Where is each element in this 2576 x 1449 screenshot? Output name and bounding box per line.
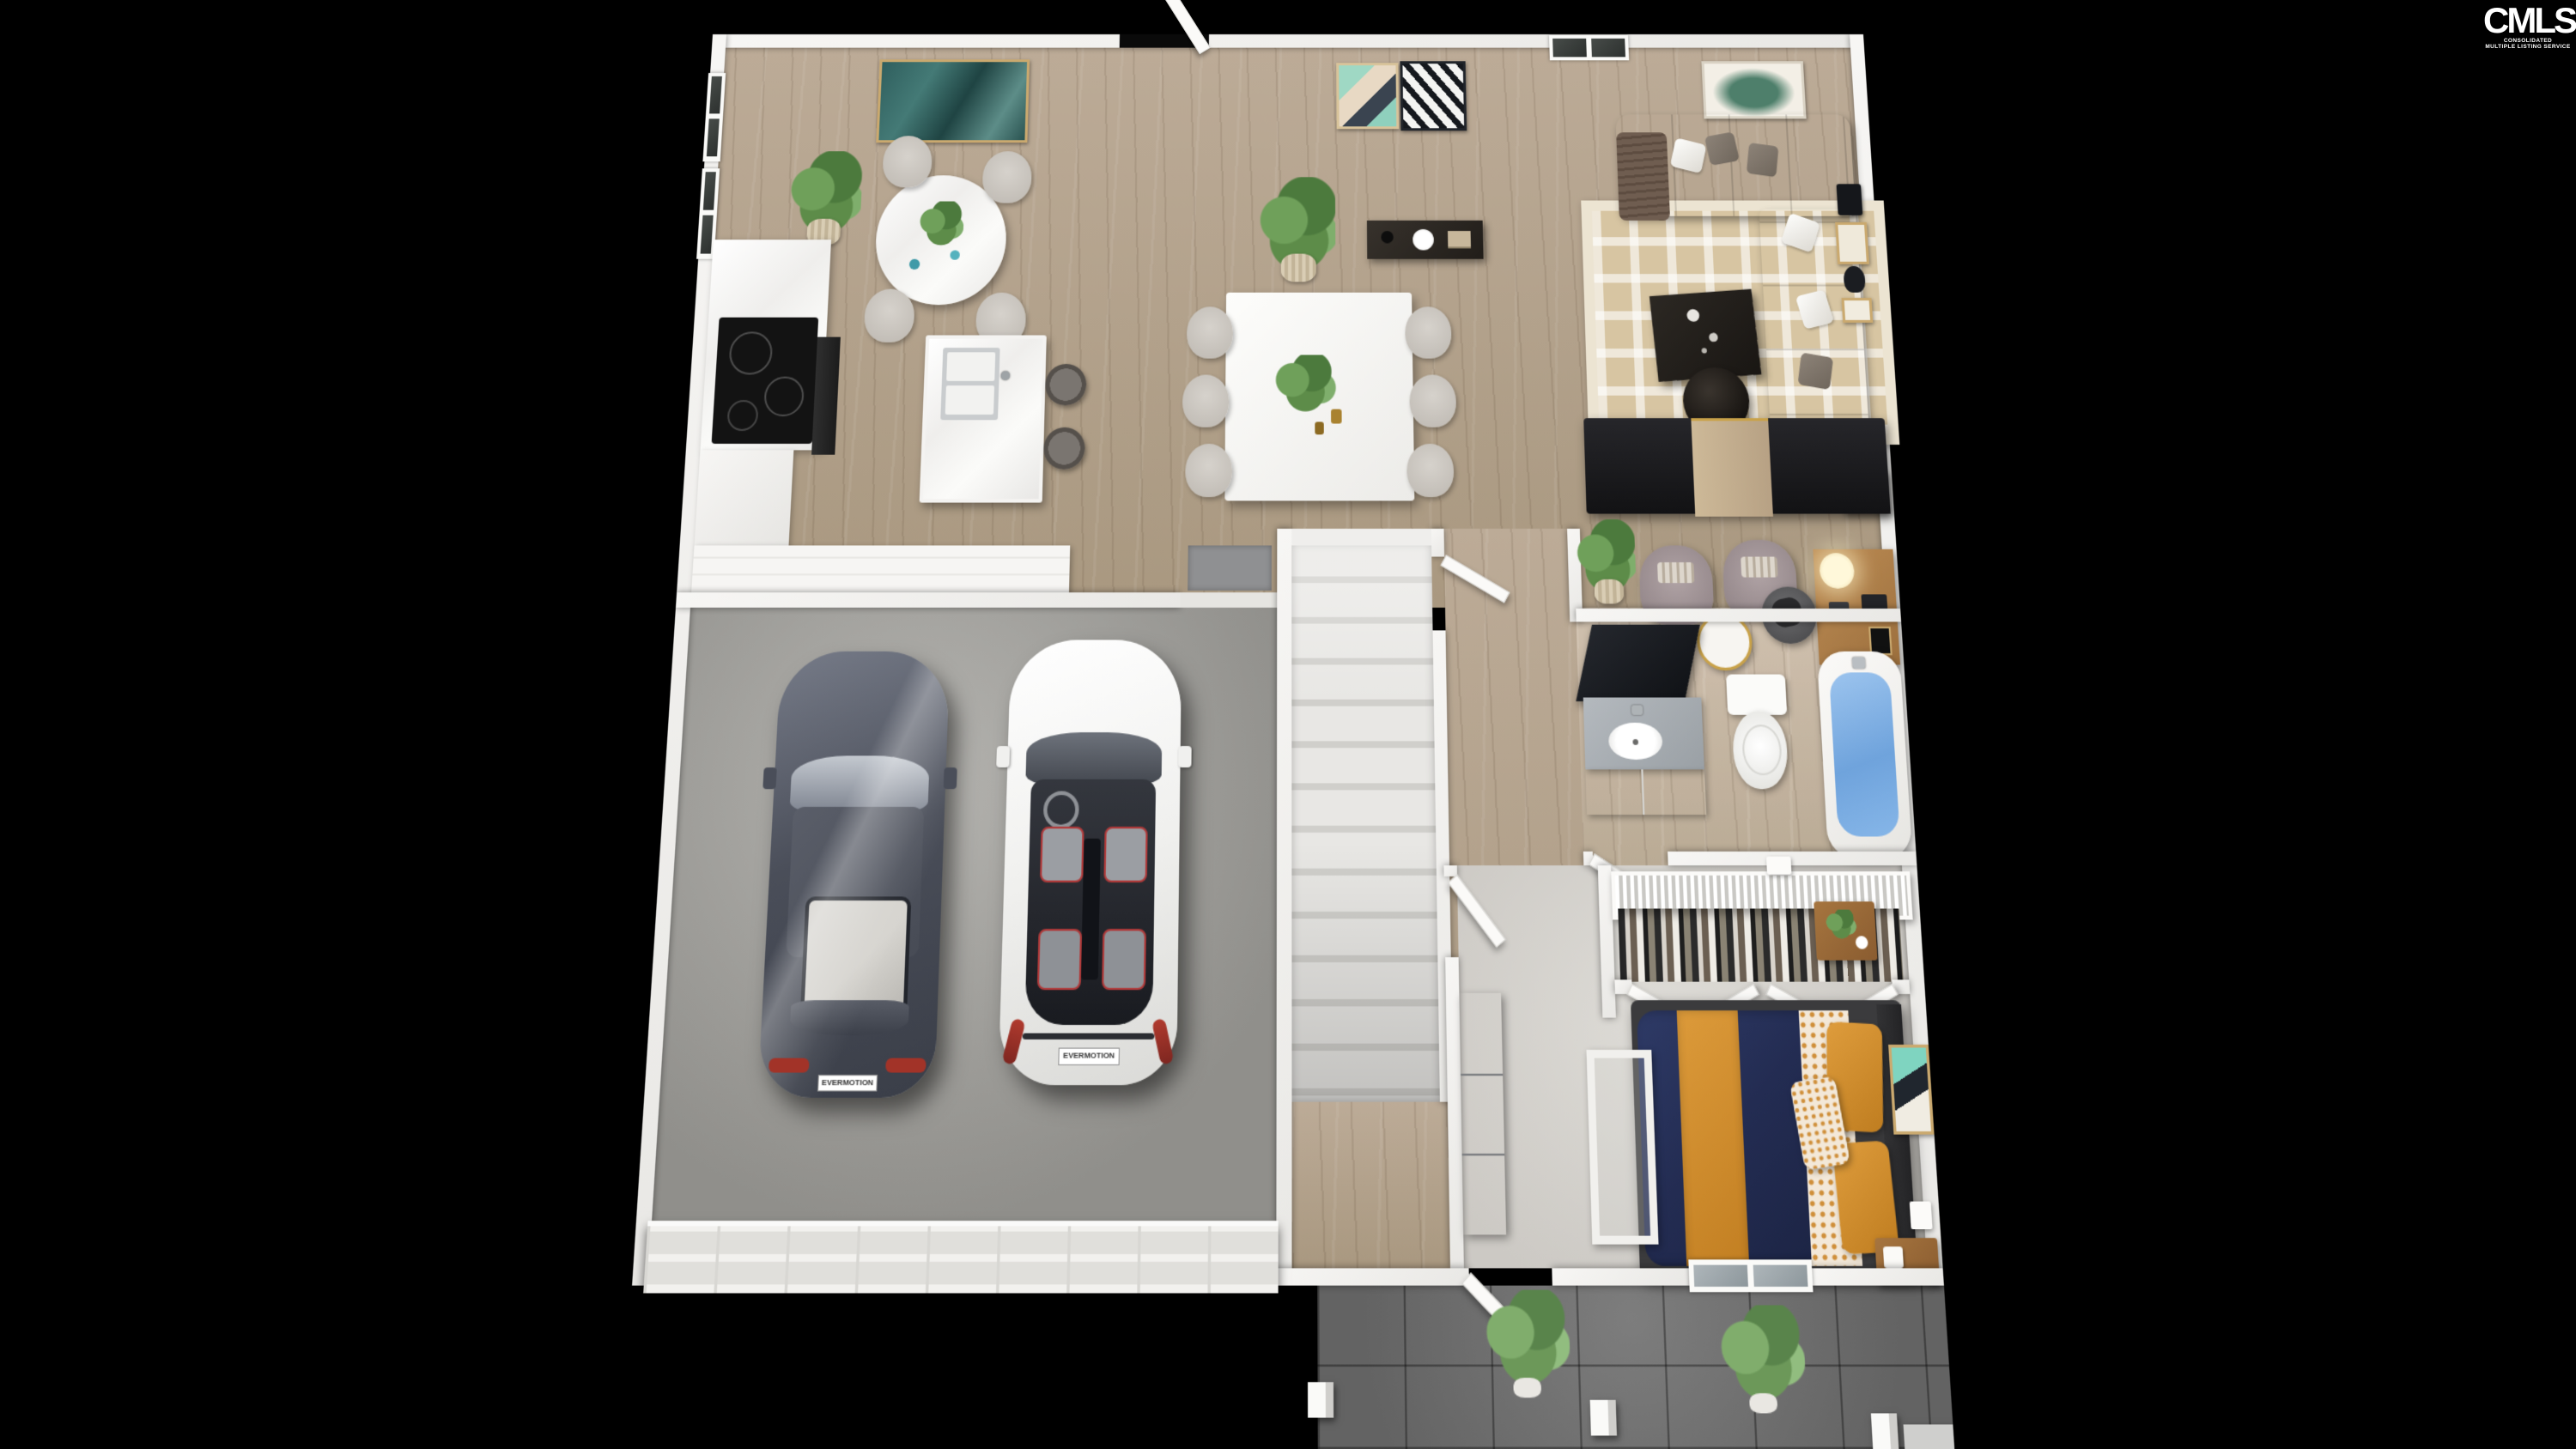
nightstand-mug (1856, 936, 1868, 949)
kitchen-window-1-pane-b (707, 118, 720, 156)
car-graphite-sedan: EVERMOTION (757, 652, 950, 1098)
bedroom-wall-art (1888, 1045, 1935, 1135)
staircase-shading (1291, 543, 1440, 1101)
burner-ring-2 (763, 377, 805, 416)
entry-palm-basket (1281, 254, 1316, 282)
bathtub-water (1829, 672, 1900, 836)
desk (1813, 549, 1900, 665)
hatch-console (1081, 839, 1101, 979)
island-sink (940, 348, 999, 420)
bath-top-wall (1576, 609, 1901, 621)
hatch-taillight-left (1001, 1018, 1025, 1066)
sofa-pillow-taupe-3 (1798, 352, 1834, 390)
dining-chair-5 (1409, 375, 1456, 427)
desk-lamp (1819, 553, 1856, 589)
sedan-taillight-right (885, 1058, 927, 1073)
garage-stairs-wall (1276, 529, 1291, 1286)
sedan-mirror-left (762, 767, 777, 789)
bottom-wall-b (1552, 1268, 1689, 1285)
media-wood-accent (1691, 418, 1773, 517)
sedan-taillight-left (769, 1058, 810, 1073)
vanity-cabinet (1585, 769, 1706, 815)
console-phone (1381, 231, 1393, 243)
bedroom-window-pane-1 (1693, 1265, 1748, 1287)
dining-chair-4 (1405, 306, 1452, 358)
cooktop (712, 318, 819, 444)
sink-basin-2 (945, 385, 994, 415)
porch-plant-1 (1482, 1290, 1571, 1391)
dining-chair-3 (1185, 444, 1232, 497)
dining-chair-2 (1182, 375, 1230, 427)
bathtub (1817, 652, 1913, 858)
kitchen-island (920, 336, 1047, 503)
dining-chair-6 (1406, 444, 1454, 497)
armchair-2-pillow (1741, 557, 1778, 578)
geometric-pastel-art (1336, 63, 1399, 129)
hatch-steering-wheel (1043, 791, 1079, 829)
sofa-pillow-taupe-1 (1704, 132, 1740, 166)
floorplan-scene: EVERMOTION EVERMOTION (622, 34, 1954, 1449)
console-table (1367, 221, 1484, 259)
porch-post-3 (1871, 1413, 1899, 1449)
outer-wall-top (712, 34, 1864, 48)
porch-plant-2-pot (1749, 1393, 1777, 1413)
hatch-glass-canopy (1024, 779, 1156, 1025)
gallery-frame-gold-1 (1835, 222, 1869, 264)
gallery-frame-gold-2 (1841, 298, 1873, 323)
table-centerpiece-plant (917, 202, 964, 249)
tall-cabinet (694, 450, 793, 546)
nook-chair-1 (882, 136, 933, 187)
nightstand-plant (1824, 910, 1857, 940)
pantry-cabinets (691, 545, 1070, 596)
garage-entry-mat (1188, 545, 1272, 591)
sofa-throw-blanket (1616, 132, 1670, 221)
bedroom-window-pane-2 (1753, 1265, 1808, 1287)
hatch-seat-3 (1037, 929, 1082, 990)
nightstand-top (1814, 901, 1877, 960)
toilet-tank (1726, 675, 1787, 715)
porch-step (1904, 1424, 1955, 1449)
hatch-mirror-left (996, 746, 1010, 767)
armchair-1-pillow (1657, 562, 1694, 583)
nook-chair-2 (981, 151, 1032, 203)
stairs-right-wall-upper (1431, 529, 1444, 557)
kitchen-window-1-pane (709, 76, 722, 113)
car-white-hatchback: EVERMOTION (998, 640, 1182, 1085)
garage-door (643, 1221, 1278, 1293)
stair-landing-floor (1291, 1102, 1458, 1269)
gallery-frame-black-1 (1837, 184, 1863, 215)
garage-top-wall (676, 592, 1181, 608)
hatch-license-plate: EVERMOTION (1058, 1047, 1120, 1065)
kitchen-window-2-pane (703, 172, 716, 209)
coffee-table-decor-vases (1686, 309, 1700, 322)
sedan-reflection (757, 652, 950, 1098)
bath-bottom-wall-right (1668, 852, 1917, 865)
burner-ring-1 (728, 331, 774, 374)
hatch-taillight-right (1151, 1018, 1174, 1066)
hatch-mirror-right (1178, 746, 1191, 767)
toilet-seat-ring (1741, 724, 1783, 775)
bedroom-wall-light-1 (1766, 857, 1791, 875)
sink-drain (1632, 739, 1638, 745)
console-vase (1413, 229, 1434, 250)
garage-floor (652, 608, 1277, 1221)
hatch-plate-text: EVERMOTION (1063, 1051, 1115, 1060)
sedan-mirror-right (944, 767, 957, 789)
zigzag-art (1400, 61, 1467, 130)
cmls-logo-text: CMLS (2483, 3, 2573, 38)
staircase (1291, 543, 1440, 1101)
nightstand-lamp (1883, 1246, 1904, 1268)
burner-ring-3 (726, 400, 759, 431)
dresser (1459, 993, 1506, 1235)
dining-vase-gold-2 (1315, 421, 1323, 434)
porch-tile (1317, 1286, 1954, 1449)
hatch-seat-4 (1102, 929, 1146, 990)
cmls-watermark: CMLS CONSOLIDATED MULTIPLE LISTING SERVI… (2483, 3, 2573, 50)
cmls-logo-subtext-2: MULTIPLE LISTING SERVICE (2483, 44, 2573, 50)
dining-vase-gold-1 (1331, 409, 1342, 424)
hatch-rear-trim (1023, 1034, 1155, 1040)
porch-post-2 (1590, 1400, 1617, 1436)
entry-window-pane-right (1591, 39, 1625, 58)
entry-window-pane-left (1552, 39, 1587, 58)
stair-landing (1291, 529, 1431, 546)
sedan-plate-text: EVERMOTION (822, 1078, 874, 1088)
bottom-wall-c (1812, 1268, 1944, 1285)
teal-abstract-art (876, 59, 1030, 142)
loft-plant-basket (1595, 579, 1625, 604)
bathtub-faucet (1852, 657, 1866, 668)
bed-orange-runner (1677, 1010, 1750, 1266)
porch-post-1 (1308, 1382, 1334, 1417)
vanity-faucet (1631, 706, 1643, 715)
bedroom-window (1688, 1259, 1813, 1292)
console-books (1448, 231, 1471, 246)
media-wall (1583, 418, 1891, 513)
porch-plant-2 (1716, 1305, 1807, 1406)
leaf-art (1701, 61, 1806, 118)
foot-bench (1587, 1050, 1659, 1245)
vanity-sink (1608, 723, 1663, 760)
bedroom-wall-light-2 (1910, 1202, 1933, 1229)
sofa-pillow-taupe-2 (1747, 142, 1779, 177)
porch-plant-1-pot (1513, 1378, 1541, 1397)
dining-centerpiece (1272, 355, 1336, 414)
hatch-windshield (1025, 732, 1162, 785)
bottom-wall-a (1259, 1268, 1469, 1285)
entry-window (1549, 35, 1629, 60)
hatch-seat-1 (1040, 827, 1084, 882)
floorplan-render-page: { "watermark": { "brand": "CMLS", "subte… (0, 0, 2576, 1449)
garage-door-threshold (1180, 592, 1277, 608)
hatch-seat-2 (1103, 827, 1147, 882)
vanity-counter (1583, 698, 1704, 770)
kitchen-window-2-pane-b (701, 215, 714, 254)
sink-basin-1 (946, 352, 995, 381)
dining-chair-1 (1187, 306, 1233, 358)
vanity-mirror (1576, 625, 1699, 701)
sedan-license-plate: EVERMOTION (817, 1075, 878, 1091)
